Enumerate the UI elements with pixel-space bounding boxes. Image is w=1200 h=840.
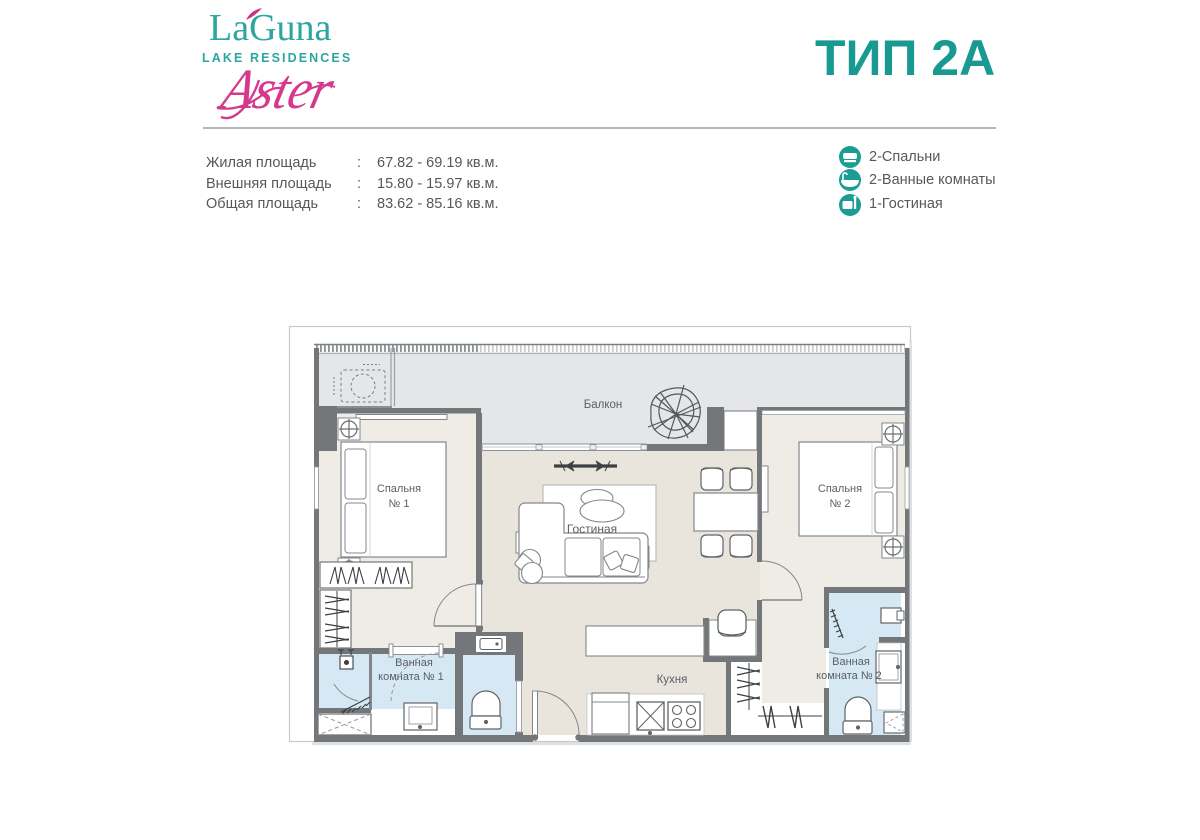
svg-text:Гостиная: Гостиная [567, 522, 617, 536]
svg-text:Спальня: Спальня [377, 483, 421, 495]
svg-text:Кухня: Кухня [657, 674, 688, 686]
svg-text:комната № 2: комната № 2 [816, 670, 882, 682]
svg-text:комната № 1: комната № 1 [378, 671, 444, 683]
svg-text:Балкон: Балкон [584, 399, 623, 411]
svg-text:Спальня: Спальня [818, 483, 862, 495]
svg-text:№ 1: № 1 [389, 498, 410, 510]
svg-text:№ 2: № 2 [830, 498, 851, 510]
svg-text:Ванная: Ванная [395, 657, 433, 669]
svg-text:Ванная: Ванная [832, 656, 870, 668]
